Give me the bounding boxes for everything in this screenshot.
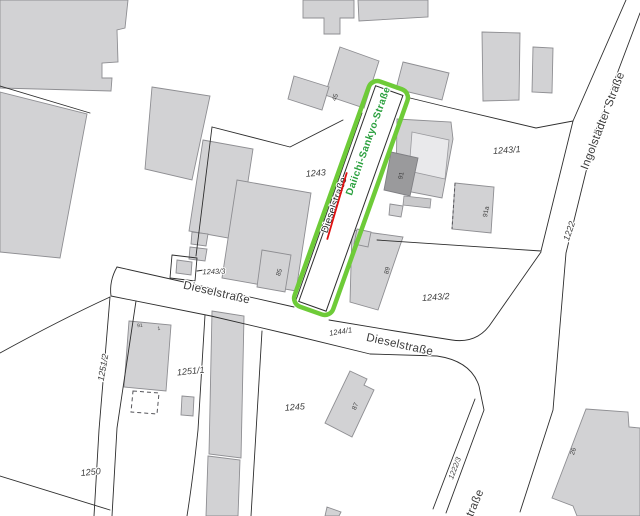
parcel-label-1243-1[interactable]: 1243/1 <box>493 144 521 156</box>
parcel-label-1222[interactable]: 1222 <box>561 220 577 242</box>
parcel-label-1243[interactable]: 1243 <box>305 167 326 178</box>
cadastral-map-canvas[interactable]: Dieselstraße Dieselstraße Ingolstädter S… <box>0 0 640 516</box>
street-label-ingolstaedter-strasse[interactable]: Ingolstädter Straße <box>579 70 627 171</box>
building-topright-narrow <box>532 47 553 93</box>
building-cluster-annex <box>389 204 403 217</box>
parcel-label-1243-3[interactable]: 1243/3 <box>202 267 226 277</box>
parcel-label-1245[interactable]: 1245 <box>284 401 306 412</box>
building-cluster-strip <box>403 196 431 208</box>
building-hall-85 <box>257 250 291 292</box>
building-1251-dashed-annex <box>131 391 159 414</box>
boundary-1250-south <box>0 476 110 510</box>
map-svg: Dieselstraße Dieselstraße Ingolstädter S… <box>0 0 640 516</box>
building-factory-west <box>0 92 87 258</box>
building-strip-south-lower <box>206 456 240 516</box>
building-corridor-top-b <box>288 76 329 110</box>
building-factory-northwest <box>0 0 128 91</box>
ingolstaedter-west-edge <box>541 0 626 251</box>
building-small-square-a <box>191 232 208 246</box>
street-label-dieselstrasse-west[interactable]: Dieselstraße <box>182 280 251 307</box>
parcel-label-1243-2[interactable]: 1243/2 <box>422 291 450 303</box>
building-strip-south-upper <box>209 311 244 458</box>
building-ne-of-corridor <box>396 62 449 100</box>
parcel-label-1251-2[interactable]: 1251/2 <box>96 353 111 382</box>
building-top-right-wide <box>358 0 428 21</box>
building-topright-large <box>482 32 520 101</box>
building-number-house-mark-a: 91 <box>137 323 143 330</box>
building-1251-shed <box>181 396 194 416</box>
parcel-label-1251-1[interactable]: 1251/1 <box>176 365 204 378</box>
building-26 <box>552 409 640 516</box>
street-label-partial-south: straße <box>462 488 486 516</box>
building-1243-3 <box>176 260 192 275</box>
building-top-center <box>303 0 354 34</box>
boundary-1243-1-south <box>377 240 541 251</box>
parcel-label-1244-1[interactable]: 1244/1 <box>329 325 353 337</box>
parcel-label-1250[interactable]: 1250 <box>80 466 101 478</box>
building-87 <box>325 371 374 437</box>
boundary-strip-east <box>251 331 262 516</box>
dieselstrasse-west-end <box>111 267 117 296</box>
boundary-1251-2-west <box>94 297 110 516</box>
building-small-square-b <box>189 247 207 261</box>
boundary-1243-north <box>212 120 343 147</box>
building-corner-bottom-center <box>325 507 341 516</box>
boundary-1250-north <box>0 297 110 353</box>
